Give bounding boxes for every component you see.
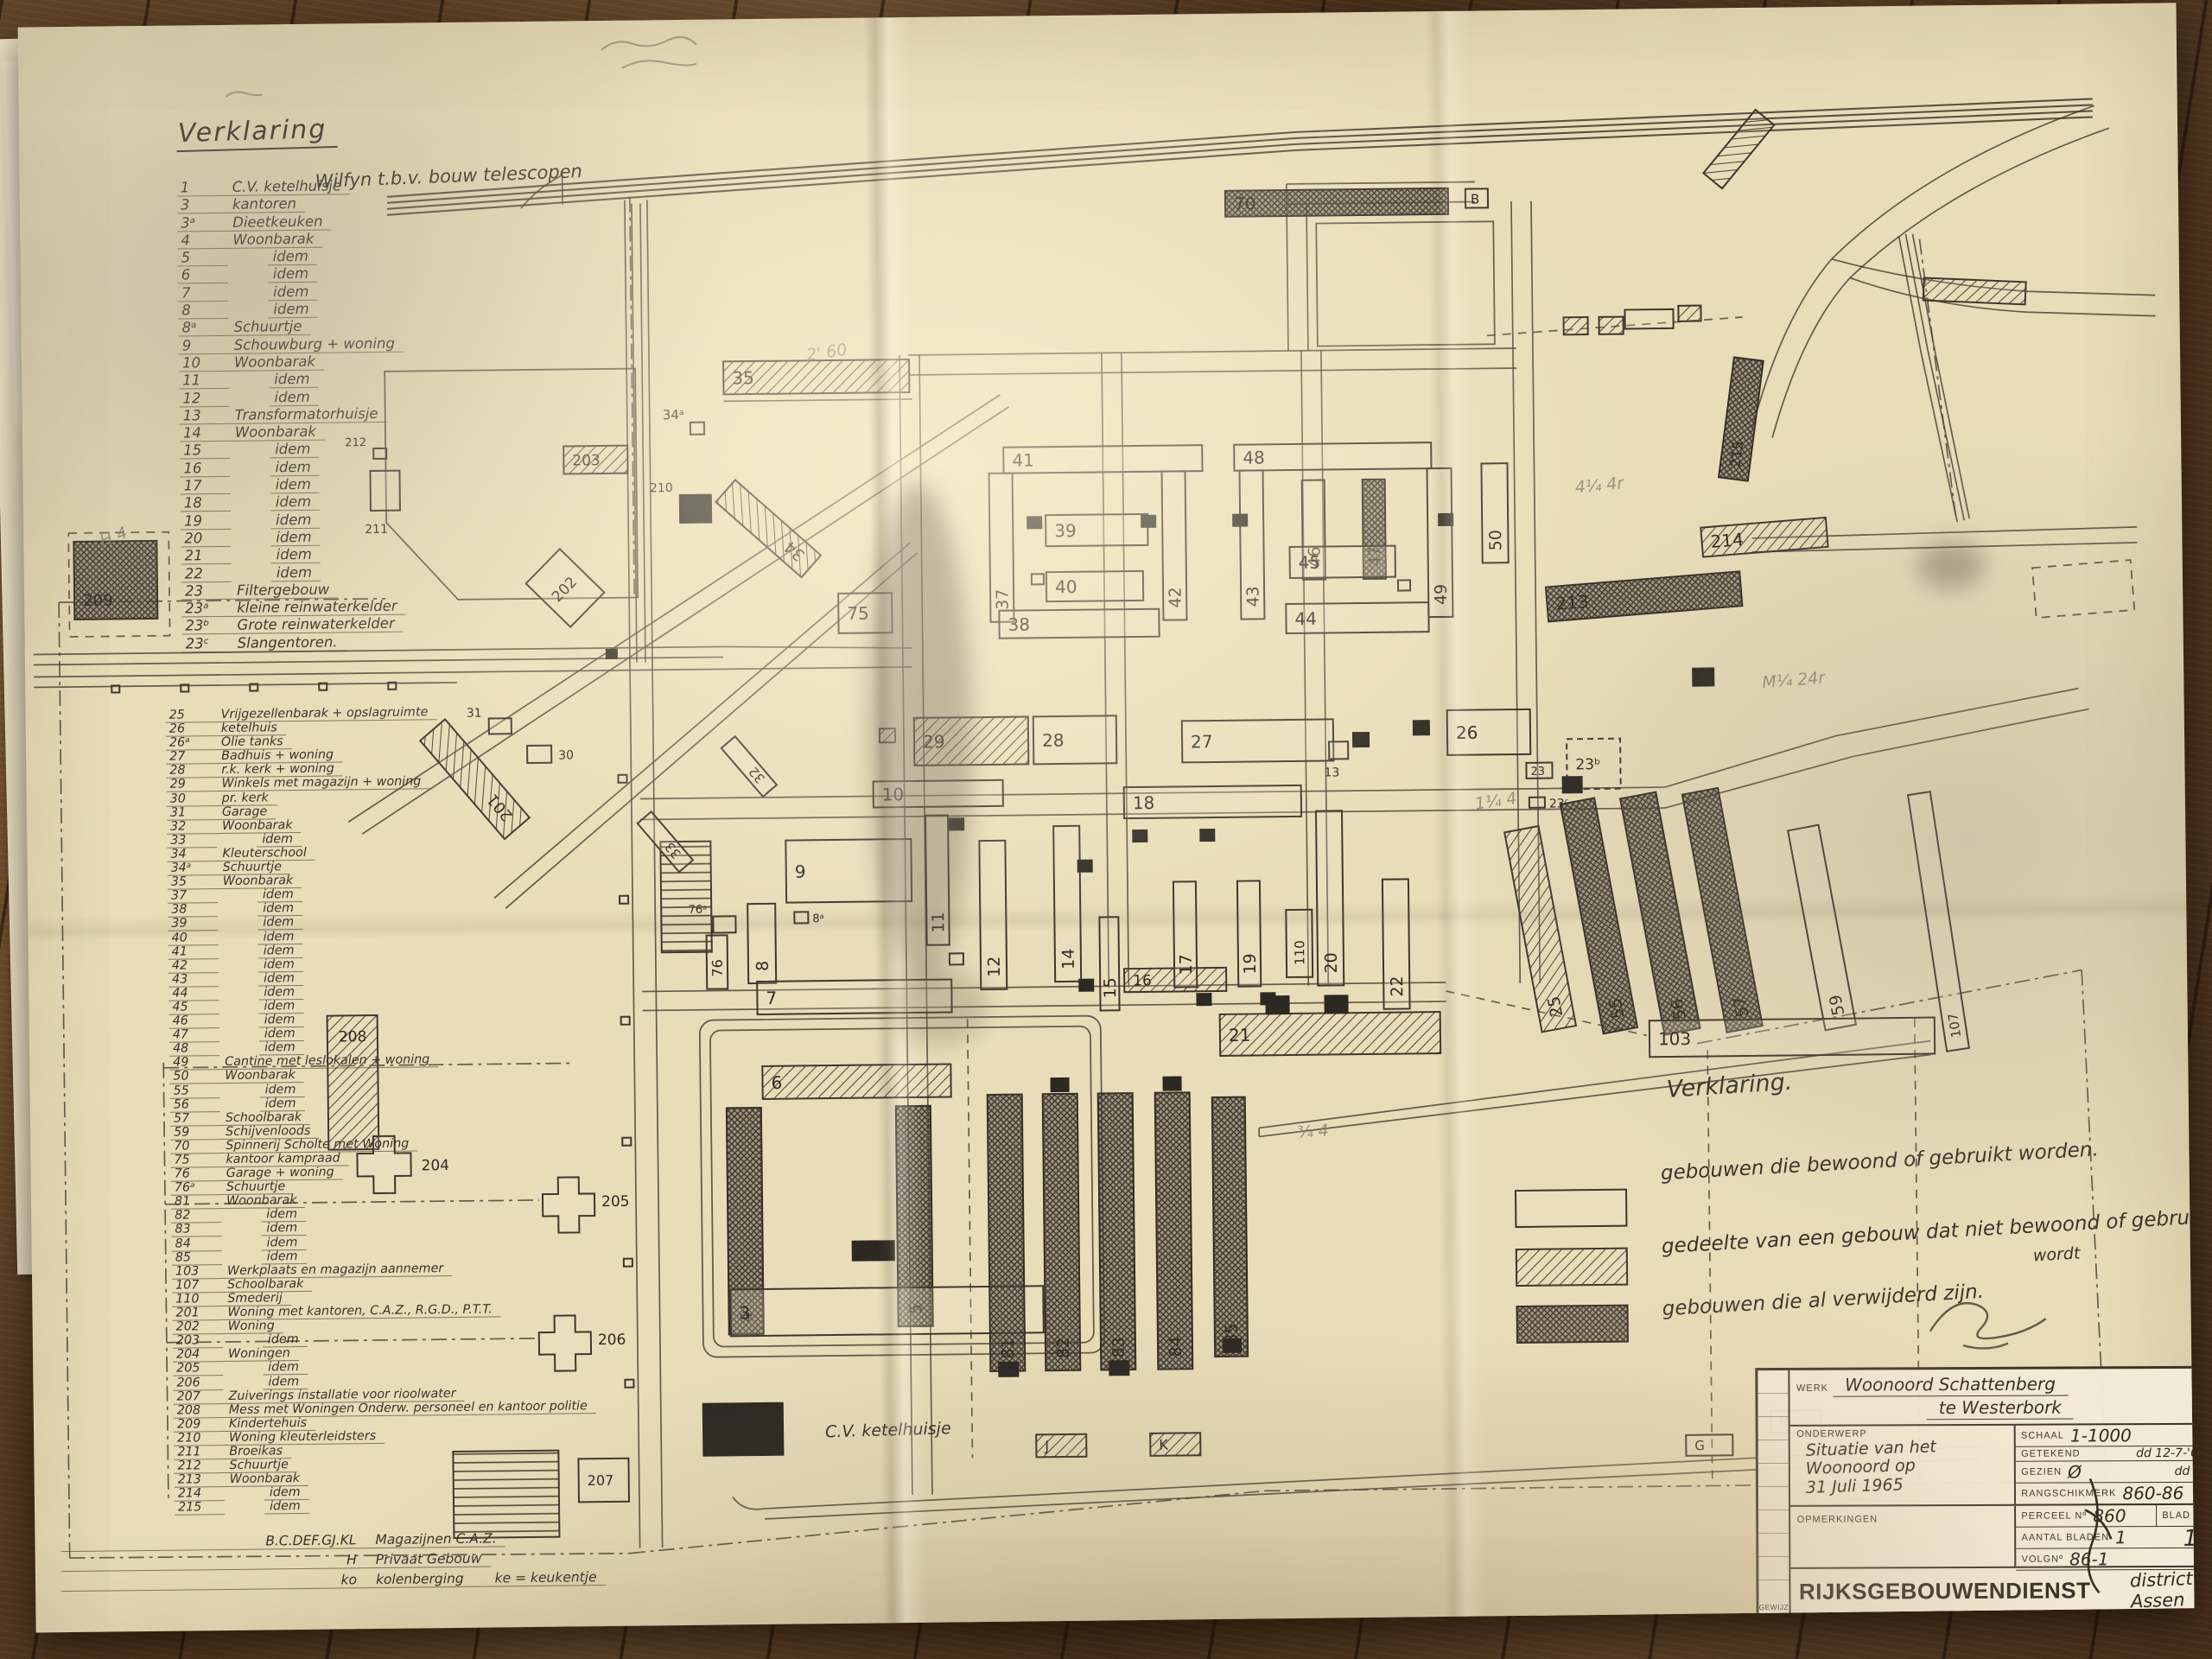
legend-item-label: Smederij (222, 1291, 291, 1306)
opmerkingen-label: OPMERKINGEN (1797, 1514, 1878, 1524)
legend-item-number: 56 (170, 1097, 220, 1113)
legend-item-number: 29 (166, 778, 216, 793)
legend-item-number: 15 (180, 442, 230, 460)
legend-item-label: Woonbarak (227, 231, 322, 249)
building-number: 206 (598, 1332, 626, 1349)
building-number: 44 (1294, 608, 1317, 629)
legend-item: 9Schouwburg + woning (179, 334, 404, 354)
legend-item-label: idem (257, 929, 302, 944)
annex-structure (1032, 574, 1044, 584)
legend-item: 23ᵇGrote reinwaterkelder (181, 615, 406, 635)
legend-item-number: 8ᵃ (178, 319, 228, 337)
road-line (723, 645, 912, 650)
building-22: 22 (1382, 879, 1410, 1008)
legend-item-number: 41 (168, 944, 219, 960)
road-curve (733, 1497, 765, 1510)
legend-item-number: 17 (181, 477, 231, 495)
building-8ᵃ: 8ᵃ (794, 912, 824, 925)
building-35: 35 (723, 359, 909, 394)
legend-item-number: 76ᵃ (171, 1180, 221, 1196)
building-84: 84 (1155, 1092, 1193, 1369)
legend-item-number: 39 (168, 916, 218, 931)
annex-structure (1624, 309, 1673, 329)
legend-item-label: Schouwburg + woning (229, 334, 404, 353)
building-number: 203 (572, 452, 601, 469)
opmerkingen-cell: OPMERKINGEN (1790, 1506, 2017, 1567)
building-34ᵃ: 34ᵃ (663, 407, 704, 435)
annex-structure (1599, 317, 1624, 334)
building-number: 70 (1234, 194, 1256, 214)
annex-structure (1353, 733, 1369, 747)
annex-structure (620, 896, 628, 904)
building-83: 83 (1098, 1093, 1136, 1370)
building-15: 15 (1099, 917, 1120, 1010)
legend-item-number: 214 (175, 1486, 225, 1502)
building-number: 39 (1054, 520, 1077, 541)
legend-item-number: 203 (173, 1333, 223, 1349)
building-G: G (1686, 1434, 1732, 1456)
building-48: 48 (1234, 442, 1431, 471)
map-key-line-partial-wrap: wordt (2032, 1243, 2081, 1265)
legend-item-number: 49 (169, 1055, 219, 1071)
road-line (968, 1019, 973, 1458)
legend-item-number: 44 (168, 986, 219, 1001)
legend-item-label: Werkplaats en magazijn aannemer (222, 1262, 452, 1279)
building-number: 214 (1710, 529, 1745, 552)
legend-item-label: idem (257, 915, 302, 931)
legend-item-number: 23ᵃ (181, 600, 232, 618)
building-number: 49 (1432, 584, 1451, 605)
annex-structure (1439, 514, 1452, 525)
legend-letter-key: ko (61, 1572, 371, 1592)
legend-item-number: 70 (170, 1139, 220, 1154)
legend-item-number: 47 (169, 1027, 219, 1043)
annex-structure (1141, 516, 1155, 527)
annex-structure (621, 1017, 630, 1025)
legend-item-number: 37 (168, 888, 218, 904)
building-number: 29 (923, 731, 945, 752)
legend-item-label: Garage + woning (221, 1166, 343, 1182)
legend-item-label: idem (257, 832, 302, 848)
legend-item-number: 20 (181, 530, 231, 548)
legend-item-label: Woonbarak (230, 423, 325, 442)
legend-item-label: Dieetkeuken (227, 213, 332, 231)
legend-swatch (1516, 1190, 1626, 1227)
building-number: 59 (1826, 993, 1848, 1017)
legend-item-number: 30 (167, 791, 217, 807)
building-number: 27 (1191, 731, 1213, 752)
building-number: 55 (1605, 996, 1628, 1020)
building-1: 1 (703, 1403, 784, 1456)
legend-letter-label: Magazijnen C.A.Z. (370, 1530, 505, 1548)
legend-item-number: 40 (168, 931, 218, 946)
building-26: 26 (1447, 709, 1531, 755)
building-number: 23ᵇ (1575, 756, 1600, 773)
legend-item-label: idem (258, 957, 303, 973)
road-line (1287, 182, 1475, 184)
building-209: 209 (73, 541, 157, 620)
legend-item-label: pr. kerk (217, 791, 277, 806)
legend-item-number: 25 (166, 708, 216, 723)
legend-item-number: 4 (177, 232, 227, 250)
legend-item-label: idem (268, 248, 318, 266)
building-number: 26 (1456, 722, 1478, 743)
building-number: 7 (766, 988, 777, 1008)
pencil-note: ¾ 4 (1296, 1121, 1329, 1142)
legend-item-label: Filtergebouw (232, 581, 338, 599)
annex-structure (1027, 517, 1041, 528)
building-9: 9 (785, 839, 912, 903)
legend-item-number: 201 (172, 1306, 222, 1321)
annex-structure (1233, 515, 1247, 526)
building-number: 56 (1668, 997, 1690, 1021)
onderwerp-cell: ONDERWERP Situatie van het Woonoord op 3… (1789, 1426, 2016, 1505)
building-49: 49 (1427, 468, 1453, 617)
legend-item-number: 107 (172, 1278, 222, 1294)
building-number: 83 (1109, 1337, 1128, 1357)
legend-item-label: idem (269, 371, 319, 389)
road-line (640, 203, 645, 662)
building-45: 45 (1290, 546, 1395, 578)
annex-structure (1564, 317, 1588, 334)
annex-structure (1079, 980, 1093, 991)
legend-item-label: idem (268, 283, 318, 302)
legend-letter-label: Privaat Gebouw (371, 1551, 491, 1569)
legend-item-number: 21 (181, 547, 231, 565)
parcel-boundary (385, 369, 638, 601)
annex-structure (1414, 721, 1429, 734)
legend-item-number: 59 (170, 1125, 220, 1141)
building-39: 39 (1046, 514, 1147, 546)
legend-item-label: idem (257, 887, 302, 903)
legend-item-number: 27 (166, 749, 216, 765)
legend-item-number: 43 (168, 972, 219, 988)
building-number: 8 (753, 961, 772, 971)
building-number: 15 (1101, 977, 1120, 998)
road-line (908, 348, 1516, 355)
building-number: 215 (1727, 440, 1747, 468)
legend-item-label: idem (258, 985, 303, 1001)
photo-scene: 70B3534ᵃ34210752022032112122094137394038… (0, 0, 2212, 1659)
legend-item-label: Garage (217, 804, 276, 820)
building-number: 210 (650, 481, 673, 495)
legend-item-label: Woning met kantoren, C.A.Z., R.G.D., P.T… (222, 1302, 501, 1320)
building-20: 20 (1316, 810, 1344, 985)
building-number: 57 (1730, 995, 1752, 1019)
building-number: 38 (1007, 614, 1030, 635)
legend-item-label: Grote reinwaterkelder (232, 615, 403, 634)
legend-item-label: Winkels met magazijn + woning (216, 775, 429, 792)
legend-item-number: 3 (177, 196, 227, 214)
werk-value-2: te Westerbork (1927, 1396, 2074, 1420)
road-line (908, 368, 1516, 375)
legend-item-label: idem (268, 301, 318, 319)
legend-item-number: 46 (169, 1014, 219, 1029)
legend-item-number: 31 (167, 805, 217, 821)
building-number: 50 (1486, 530, 1505, 550)
legend-item-number: 213 (175, 1472, 225, 1488)
legend-item-label: idem (264, 1499, 309, 1515)
annex-structure (950, 953, 963, 964)
blad-number-value: 1 (2183, 1526, 2195, 1552)
legend-item-number: 38 (168, 902, 218, 918)
annex-structure (622, 1138, 631, 1146)
building-32: 32 (721, 736, 777, 797)
legend-item-label: idem (270, 476, 321, 494)
legend-item-label: idem (260, 1096, 305, 1112)
building-75: 75 (838, 593, 893, 633)
legend-item-number: 81 (171, 1194, 221, 1210)
legend-item-number: 16 (180, 460, 230, 478)
building-number: 42 (1166, 587, 1185, 607)
building-number: ko (861, 1245, 874, 1258)
building-number: 28 (1042, 730, 1065, 751)
legend-item-label: kleine reinwaterkelder (232, 598, 406, 617)
road-line (1905, 233, 1964, 521)
building-85: 85 (1212, 1097, 1248, 1357)
legend-item-number: 7 (178, 284, 228, 302)
building-number: 12 (985, 957, 1004, 977)
legend-item-label: Broeikas (224, 1444, 291, 1459)
building-number: 75 (847, 603, 869, 624)
legend-item-number: 10 (179, 354, 229, 372)
building-ko: ko (853, 1241, 894, 1261)
werk-value: Woonoord Schattenberg (1833, 1374, 2068, 1397)
legend-item-label: idem (259, 1013, 304, 1028)
legend-item-label: Woning kleuterleidsters (224, 1429, 385, 1446)
legend-1-items: 1C.V. ketelhuisje3kantoren3ᵃDieetkeuken4… (177, 177, 407, 653)
werk-row: WERK Woonoord Schattenberg te Westerbork (1789, 1369, 2195, 1427)
building-number: 1 (712, 1420, 723, 1440)
building-number: 18 (1133, 792, 1155, 813)
aantal-bladen-value: 1 (2115, 1527, 2126, 1548)
werk-label: WERK (1796, 1383, 1828, 1394)
legend-item: 23ᶜSlangentoren. (182, 632, 407, 652)
legend-item-number: 19 (181, 512, 231, 531)
legend-item-number: 204 (173, 1347, 223, 1363)
building-27: 27 (1182, 719, 1334, 762)
legend-item-label: idem (270, 511, 321, 529)
legend-item-number: 210 (174, 1431, 224, 1446)
legend-swatch (1923, 278, 2026, 305)
legend-item-label: Woning (223, 1319, 283, 1334)
blueprint-paper: 70B3534ᵃ34210752022032112122094137394038… (18, 3, 2195, 1632)
building-number: 205 (601, 1193, 630, 1211)
legend-item-label: Slangentoren. (232, 633, 346, 652)
legend-item-number: 83 (171, 1223, 221, 1238)
annex-structure (1200, 829, 1214, 841)
building-number: 35 (732, 367, 754, 388)
legend-item-number: 50 (169, 1070, 219, 1085)
legend-item-number: 85 (172, 1250, 222, 1266)
building-number: 3 (739, 1302, 750, 1323)
agency-name: RIJKSGEBOUWENDIENST (1799, 1577, 2091, 1605)
building-number: J (1044, 1438, 1049, 1454)
legend-item-number: 12 (179, 389, 229, 407)
legend-item-number: 13 (180, 407, 230, 425)
building-number: 14 (1059, 949, 1078, 969)
legend-item-number: 55 (169, 1084, 219, 1099)
legend-item-number: 18 (181, 494, 231, 512)
annex-structure (1051, 1078, 1068, 1091)
building-34: 34 (715, 480, 821, 577)
building-number: 10 (882, 784, 905, 804)
legend-item-number: 82 (171, 1208, 221, 1224)
building-82: 82 (1043, 1094, 1081, 1370)
cv-ketelhuisje-label: C.V. ketelhuisje (825, 1419, 951, 1441)
annex-structure (1325, 995, 1347, 1013)
legend-item-number: 26ᵃ (166, 735, 216, 751)
getekend-date: dd 12-7-'65 (2136, 1446, 2194, 1460)
building-18: 18 (1124, 785, 1301, 818)
building-7: 7 (757, 979, 951, 1014)
title-block-side-strip: GEWIJZ (1758, 1370, 1790, 1614)
building-17: 17 (1173, 881, 1197, 987)
legend-item-number: 26 (166, 721, 216, 737)
legend-item-number: 33 (167, 833, 217, 849)
building-215: 215 (1719, 357, 1764, 480)
building-M: M (1693, 668, 1713, 685)
blad-label: BLAD Nº (2156, 1505, 2194, 1526)
legend-item: 13Transformatorhuisje (180, 404, 404, 424)
road-line (1912, 233, 1969, 519)
parcel-boundary (2032, 560, 2134, 618)
legend-item-number: 8 (178, 302, 228, 320)
legend-item-number: 42 (168, 958, 219, 974)
legend-item-label: idem (264, 1485, 309, 1501)
annex-structure (618, 775, 626, 783)
legend-item-label: idem (269, 388, 319, 406)
legend-item-label: idem (270, 458, 320, 476)
signature-scribble (1930, 1302, 2047, 1349)
getekend-label: GETEKEND (2021, 1448, 2081, 1459)
building-number: 43 (1243, 586, 1262, 607)
road-line (1707, 1051, 1713, 1481)
road-line (1834, 689, 2079, 736)
building-number: 76 (709, 959, 726, 977)
legend-item-number: 208 (174, 1403, 224, 1419)
legend-item-number: 28 (166, 763, 216, 779)
legend-item-label: idem (270, 529, 321, 547)
building-41: 41 (1003, 445, 1202, 474)
building-number: 37 (993, 588, 1012, 609)
gewijz-label: GEWIJZ (1759, 1603, 1789, 1611)
building-number: K (1159, 1436, 1168, 1452)
legend-item-label: idem (261, 1236, 306, 1251)
legend-item-label: idem (257, 901, 302, 917)
legend-item-number: 23ᵇ (181, 617, 232, 635)
building-number: 40 (1055, 576, 1077, 597)
legend-list-1: Verklaring 1C.V. ketelhuisje3kantoren3ᵃD… (176, 115, 407, 653)
legend-item-number: 32 (167, 819, 217, 835)
legend-item-label: idem (258, 999, 303, 1014)
legend-item-label: idem (259, 1027, 304, 1042)
building-6: 6 (762, 1064, 950, 1098)
building-107: 107 (1908, 791, 1969, 1051)
building-25: 25 (1504, 826, 1576, 1032)
title-block: GEWIJZ WERK Woonoord Schattenberg te Wes… (1755, 1366, 2194, 1617)
building-number: 23 (1530, 766, 1545, 779)
pencil-scribble (226, 37, 697, 97)
annex-structure (1133, 830, 1147, 842)
legend-item-number: 206 (173, 1376, 223, 1391)
legend-item-number: 1 (177, 179, 227, 197)
annex-structure (1266, 996, 1288, 1014)
approval-flourish (2073, 1475, 2115, 1596)
building-10: 10 (874, 780, 1003, 808)
legend-item-label: idem (262, 1249, 307, 1265)
legend-item-number: 84 (171, 1236, 221, 1252)
legend-item-label: idem (261, 1221, 306, 1236)
building-number: 213 (1555, 591, 1590, 614)
legend-item-number: 212 (174, 1459, 224, 1474)
annex-structure (1563, 777, 1582, 792)
building-J: J (1036, 1434, 1086, 1458)
building-59: 59 (1788, 825, 1856, 1031)
building-number: 81 (999, 1338, 1018, 1358)
legend-item-label: idem (258, 944, 303, 959)
annex-structure (607, 650, 617, 658)
legend-item-number: 110 (172, 1292, 222, 1307)
volgnummer-label: VOLGNº (2022, 1554, 2064, 1565)
building-number: 103 (1658, 1028, 1691, 1049)
legend-item-number: 34 (167, 847, 217, 862)
building-42: 42 (1162, 471, 1187, 620)
legend-item-number: 209 (174, 1417, 224, 1433)
legend-item-label: idem (268, 265, 318, 283)
legend-item-number: 3ᵃ (177, 213, 227, 232)
annex-structure (1109, 1361, 1128, 1375)
legend-item-label: Kleuterschool (217, 846, 315, 861)
building-14: 14 (1053, 826, 1081, 982)
drawing-info-grid: SCHAAL 1-1000 GETEKEND dd 12-7-'65 GEZIE… (2016, 1425, 2195, 1504)
building-number: 84 (1166, 1336, 1185, 1357)
legend-item-label: idem (263, 1360, 308, 1376)
building-213: 213 (1546, 571, 1743, 621)
legend-item-label: idem (263, 1332, 308, 1348)
building-210: 210 (650, 481, 711, 524)
road-line (1306, 204, 1308, 351)
legend-item-number: 75 (170, 1153, 220, 1168)
legend-letter-key: H (61, 1552, 371, 1572)
legend-item-number: 205 (173, 1361, 223, 1376)
annex-structure (111, 685, 119, 692)
legend-item-label: idem (258, 971, 303, 987)
rangschikmerk-value: 860-86 (2122, 1483, 2183, 1503)
annex-structure (319, 683, 327, 690)
building-103: 103 (1649, 1018, 1935, 1058)
legend-item-label: Schoolbarak (222, 1277, 312, 1293)
building-number: 34ᵃ (663, 407, 684, 423)
building-K: K (1150, 1433, 1200, 1456)
legend-item-label: idem (259, 1082, 304, 1097)
building-202: 202 (526, 549, 605, 626)
building-number: 9 (795, 861, 806, 882)
annex-structure (1197, 994, 1211, 1005)
legend-item-label: Cantine met leslokalen + woning (219, 1053, 438, 1071)
legend-letter-key: B.C.DEF.GJ.KL (60, 1532, 370, 1552)
schaal-value: 1-1000 (2070, 1425, 2132, 1446)
building-number: 13 (1324, 766, 1339, 779)
building-B: B (1465, 188, 1488, 207)
building-number: 21 (1229, 1025, 1251, 1046)
building-number: 11 (929, 912, 948, 932)
building-40: 40 (1046, 571, 1143, 601)
building-number: 45 (1299, 552, 1321, 573)
legend-item-number: 35 (168, 874, 218, 890)
building-number: B (1471, 191, 1480, 207)
building-50: 50 (1481, 463, 1508, 563)
